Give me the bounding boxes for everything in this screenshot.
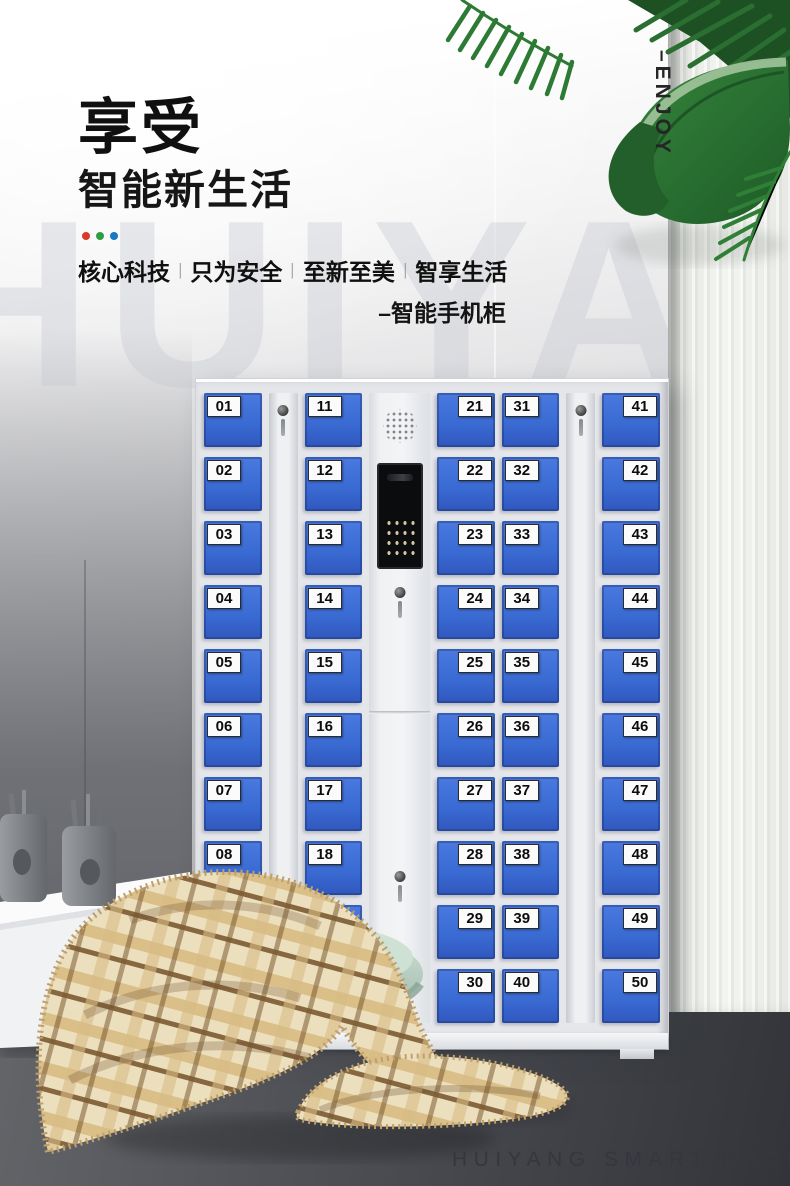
green-dot (96, 232, 104, 240)
locker-door-06: 06 (204, 713, 262, 767)
locker-door-24: 24 (437, 585, 495, 639)
locker-door-43: 43 (602, 521, 660, 575)
door-number-tag: 04 (207, 588, 241, 609)
locker-door-22: 22 (437, 457, 495, 511)
locker-door-13: 13 (305, 521, 363, 575)
speaker-grille-icon (383, 409, 417, 443)
vertical-enjoy-label: –ENJOY (650, 50, 674, 157)
locker-door-03: 03 (204, 521, 262, 575)
locker-door-25: 25 (437, 649, 495, 703)
door-number-tag: 42 (623, 460, 657, 481)
door-number-tag: 35 (505, 652, 539, 673)
door-number-tag: 14 (308, 588, 342, 609)
locker-door-11: 11 (305, 393, 363, 447)
door-number-tag: 43 (623, 524, 657, 545)
locker-door-26: 26 (437, 713, 495, 767)
door-number-tag: 05 (207, 652, 241, 673)
keyhole-icon (278, 405, 289, 416)
page-title: 享受 (78, 96, 506, 159)
locker-door-23: 23 (437, 521, 495, 575)
door-number-tag: 33 (505, 524, 539, 545)
locker-door-04: 04 (204, 585, 262, 639)
blue-dot (110, 232, 118, 240)
product-label: –智能手机柜 (78, 294, 506, 328)
promo-poster: HUIYANG (0, 0, 790, 1186)
tagline: 核心科技 | 只为安全 | 至新至美 | 智享生活 (78, 253, 506, 287)
door-number-tag: 06 (207, 716, 241, 737)
door-number-tag: 13 (308, 524, 342, 545)
tagline-divider: | (404, 260, 406, 280)
locker-door-41: 41 (602, 393, 660, 447)
door-number-tag: 45 (623, 652, 657, 673)
door-number-tag: 22 (458, 460, 492, 481)
door-number-tag: 16 (308, 716, 342, 737)
locker-door-33: 33 (502, 521, 560, 575)
locker-door-21: 21 (437, 393, 495, 447)
door-number-tag: 25 (458, 652, 492, 673)
door-number-tag: 31 (505, 396, 539, 417)
door-number-tag: 11 (308, 396, 342, 417)
door-number-tag: 23 (458, 524, 492, 545)
locker-door-36: 36 (502, 713, 560, 767)
locker-door-34: 34 (502, 585, 560, 639)
door-number-tag: 32 (505, 460, 539, 481)
furniture-scene (0, 790, 640, 1186)
door-number-tag: 24 (458, 588, 492, 609)
hero-text-block: 享受 智能新生活 核心科技 | 只为安全 | 至新至美 | 智享生活 –智能手机… (78, 96, 506, 328)
key-icon (281, 419, 285, 436)
tagline-item: 核心科技 (78, 253, 170, 287)
tagline-item: 至新至美 (303, 253, 395, 287)
red-dot (82, 232, 90, 240)
locker-door-42: 42 (602, 457, 660, 511)
door-number-tag: 34 (505, 588, 539, 609)
keypad-panel (377, 463, 423, 569)
locker-door-45: 45 (602, 649, 660, 703)
door-number-tag: 46 (623, 716, 657, 737)
locker-door-15: 15 (305, 649, 363, 703)
door-number-tag: 03 (207, 524, 241, 545)
locker-door-46: 46 (602, 713, 660, 767)
tagline-item: 智享生活 (415, 253, 507, 287)
door-number-tag: 12 (308, 460, 342, 481)
door-number-tag: 41 (623, 396, 657, 417)
locker-door-12: 12 (305, 457, 363, 511)
camera-lens-icon (387, 474, 413, 481)
page-subtitle: 智能新生活 (78, 169, 506, 212)
tagline-divider: | (179, 260, 181, 280)
key-icon (579, 419, 583, 436)
locker-door-31: 31 (502, 393, 560, 447)
tagline-item: 只为安全 (190, 253, 282, 287)
key-icon (398, 601, 402, 618)
tagline-divider: | (291, 260, 293, 280)
keyhole-icon (575, 405, 586, 416)
locker-door-01: 01 (204, 393, 262, 447)
door-number-tag: 15 (308, 652, 342, 673)
door-number-tag: 02 (207, 460, 241, 481)
locker-door-02: 02 (204, 457, 262, 511)
locker-door-14: 14 (305, 585, 363, 639)
panel-door-seam (369, 711, 430, 714)
locker-door-44: 44 (602, 585, 660, 639)
locker-door-32: 32 (502, 457, 560, 511)
door-number-tag: 21 (458, 396, 492, 417)
keypad-keys (385, 518, 415, 558)
door-number-tag: 44 (623, 588, 657, 609)
door-number-tag: 01 (207, 396, 241, 417)
locker-door-35: 35 (502, 649, 560, 703)
locker-door-16: 16 (305, 713, 363, 767)
locker-door-05: 05 (204, 649, 262, 703)
keyhole-icon (394, 587, 405, 598)
door-number-tag: 26 (458, 716, 492, 737)
accent-dots (82, 232, 506, 240)
door-number-tag: 36 (505, 716, 539, 737)
floor-caption: HUIYANG SMART PHONE CABINET (452, 1148, 790, 1172)
